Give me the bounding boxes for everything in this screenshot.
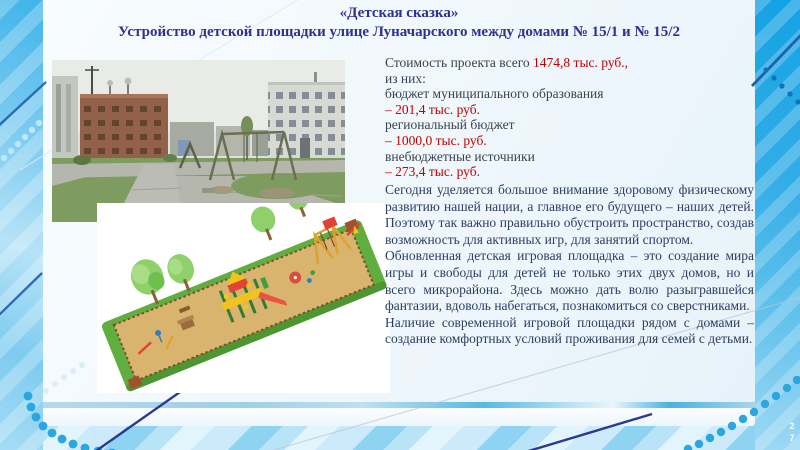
cost-amount: – 1000,0 тыс. руб.	[385, 133, 487, 148]
right-decor-band	[755, 0, 800, 450]
cost-line: – 1000,0 тыс. руб.	[385, 133, 755, 149]
cost-line: региональный бюджет	[385, 117, 755, 133]
page-number-digit: 7	[786, 432, 798, 444]
left-decor-band	[0, 0, 43, 450]
courtyard-photo	[52, 60, 345, 222]
cost-label: бюджет муниципального образования	[385, 86, 604, 101]
page-number-digit: 2	[786, 420, 798, 432]
cost-label: региональный бюджет	[385, 117, 515, 132]
cost-label: Стоимость проекта всего	[385, 55, 533, 70]
slide-title-line1: «Детская сказка»	[43, 4, 755, 23]
cost-line: – 273,4 тыс. руб.	[385, 164, 755, 180]
cost-amount: 1474,8 тыс. руб.,	[533, 55, 628, 70]
slide-title-line2: Устройство детской площадки улице Лунача…	[43, 23, 755, 42]
cost-line: – 201,4 тыс. руб.	[385, 102, 755, 118]
cost-line: из них:	[385, 71, 755, 87]
body-paragraph: Наличие современной игровой площадки ряд…	[385, 315, 754, 348]
cost-block: Стоимость проекта всего 1474,8 тыс. руб.…	[385, 55, 755, 180]
body-text: Сегодня уделяется большое внимание здоро…	[385, 182, 754, 348]
cost-amount: – 201,4 тыс. руб.	[385, 102, 480, 117]
playground-render	[97, 203, 390, 393]
cost-line: Стоимость проекта всего 1474,8 тыс. руб.…	[385, 55, 755, 71]
cost-label: из них:	[385, 71, 426, 86]
cost-line: бюджет муниципального образования	[385, 86, 755, 102]
page-number: 27	[786, 420, 798, 444]
presentation-slide: «Детская сказка» Устройство детской площ…	[0, 0, 800, 450]
slide-title: «Детская сказка» Устройство детской площ…	[43, 4, 755, 42]
cost-amount: – 273,4 тыс. руб.	[385, 164, 480, 179]
body-paragraph: Сегодня уделяется большое внимание здоро…	[385, 182, 754, 248]
footer-strip	[43, 408, 755, 426]
body-paragraph: Обновленная детская игровая площадка – э…	[385, 248, 754, 314]
cost-line: внебюджетные источники	[385, 149, 755, 165]
cost-label: внебюджетные источники	[385, 149, 535, 164]
